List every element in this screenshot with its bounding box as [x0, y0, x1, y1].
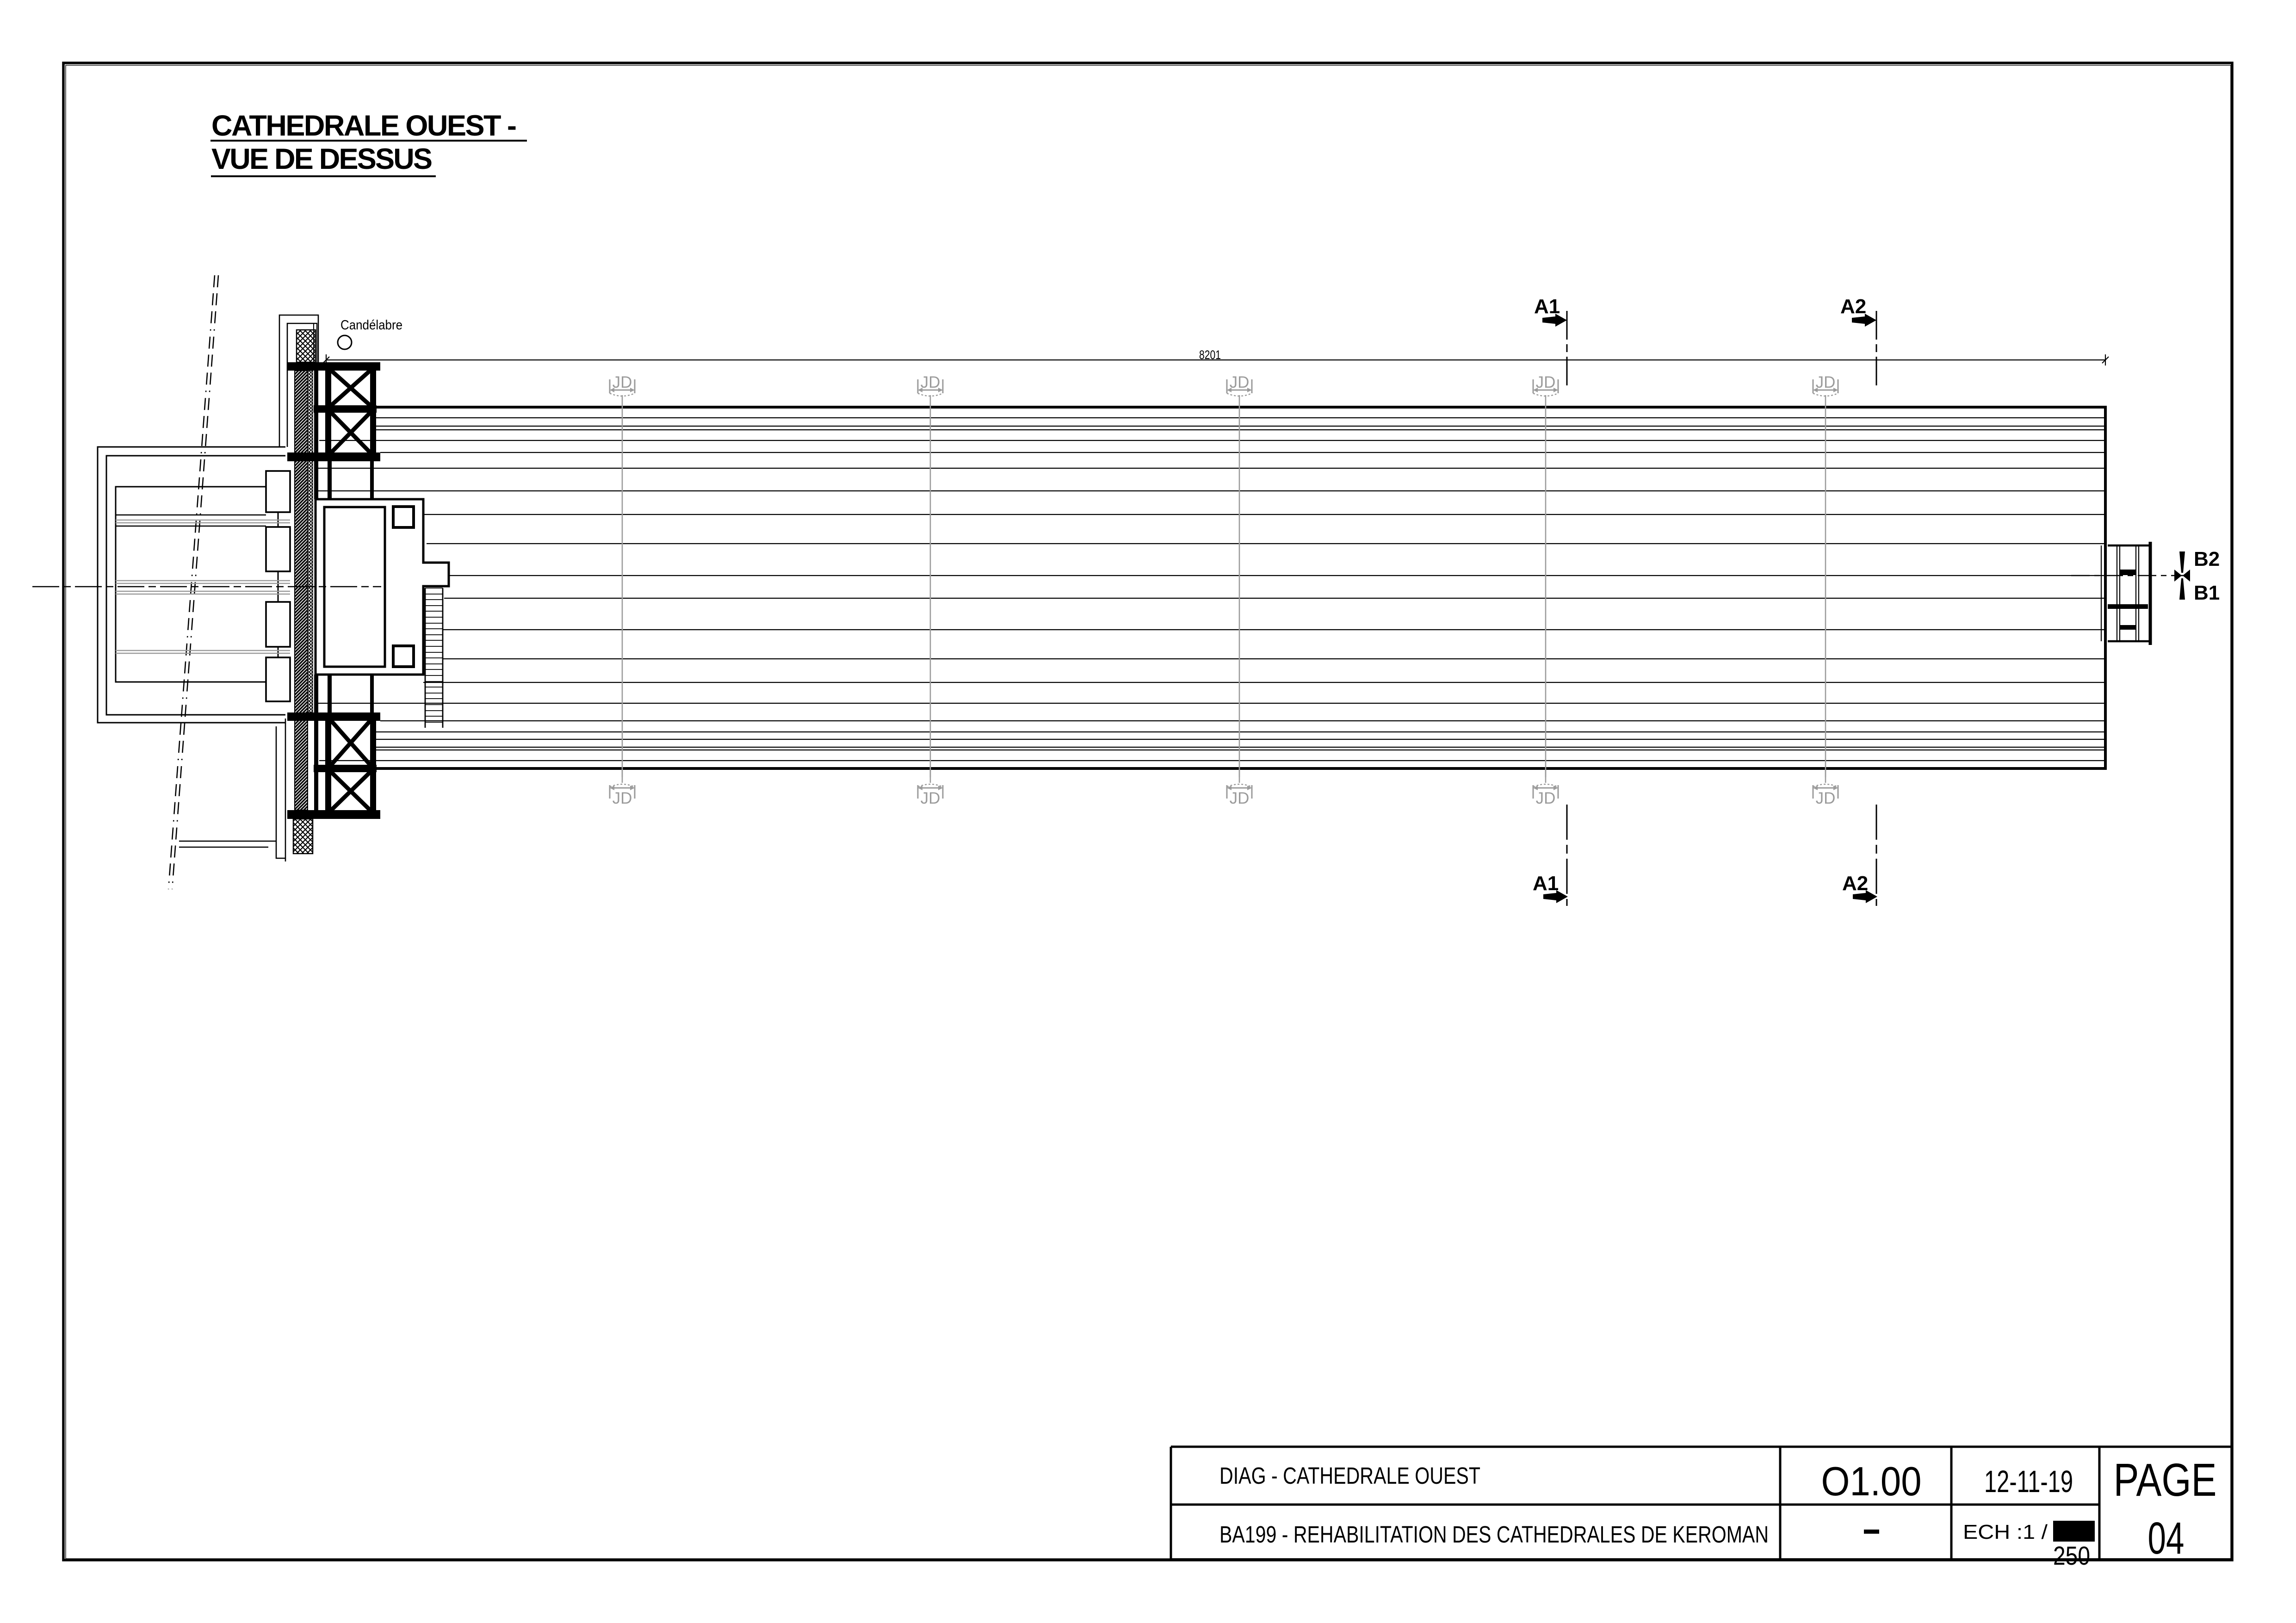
- svg-text:A1: A1: [1533, 872, 1559, 895]
- svg-text:12-11-19: 12-11-19: [1984, 1464, 2073, 1499]
- svg-text:JD: JD: [1816, 373, 1836, 391]
- svg-text:JD: JD: [921, 789, 941, 807]
- svg-text:JD: JD: [921, 373, 941, 391]
- svg-text:JD: JD: [1816, 789, 1836, 807]
- svg-text:JD: JD: [1536, 373, 1556, 391]
- svg-text:JD: JD: [1230, 373, 1250, 391]
- svg-text:250: 250: [2053, 1541, 2090, 1571]
- svg-text:B2: B2: [2194, 548, 2220, 570]
- svg-text:JD: JD: [613, 789, 632, 807]
- svg-text:ECH :1 /: ECH :1 /: [1963, 1521, 2048, 1543]
- svg-text:A2: A2: [1840, 295, 1866, 318]
- svg-text:8201: 8201: [1199, 348, 1221, 362]
- svg-text:JD: JD: [613, 373, 632, 391]
- svg-text:O1.00: O1.00: [1821, 1458, 1922, 1504]
- svg-text:DIAG - CATHEDRALE OUEST: DIAG - CATHEDRALE OUEST: [1219, 1462, 1480, 1489]
- svg-text:Candélabre: Candélabre: [340, 318, 402, 333]
- svg-text:04: 04: [2148, 1513, 2185, 1563]
- svg-text:BA199 - REHABILITATION DES CAT: BA199 - REHABILITATION DES CATHEDRALES D…: [1219, 1521, 1769, 1548]
- svg-text:CATHEDRALE OUEST -: CATHEDRALE OUEST -: [211, 110, 517, 142]
- svg-text:VUE DE DESSUS: VUE DE DESSUS: [211, 143, 433, 175]
- svg-text:PAGE: PAGE: [2114, 1454, 2217, 1506]
- svg-text:JD: JD: [1230, 789, 1250, 807]
- svg-text:JD: JD: [1536, 789, 1556, 807]
- svg-text:B1: B1: [2194, 582, 2220, 604]
- svg-text:A2: A2: [1842, 872, 1868, 895]
